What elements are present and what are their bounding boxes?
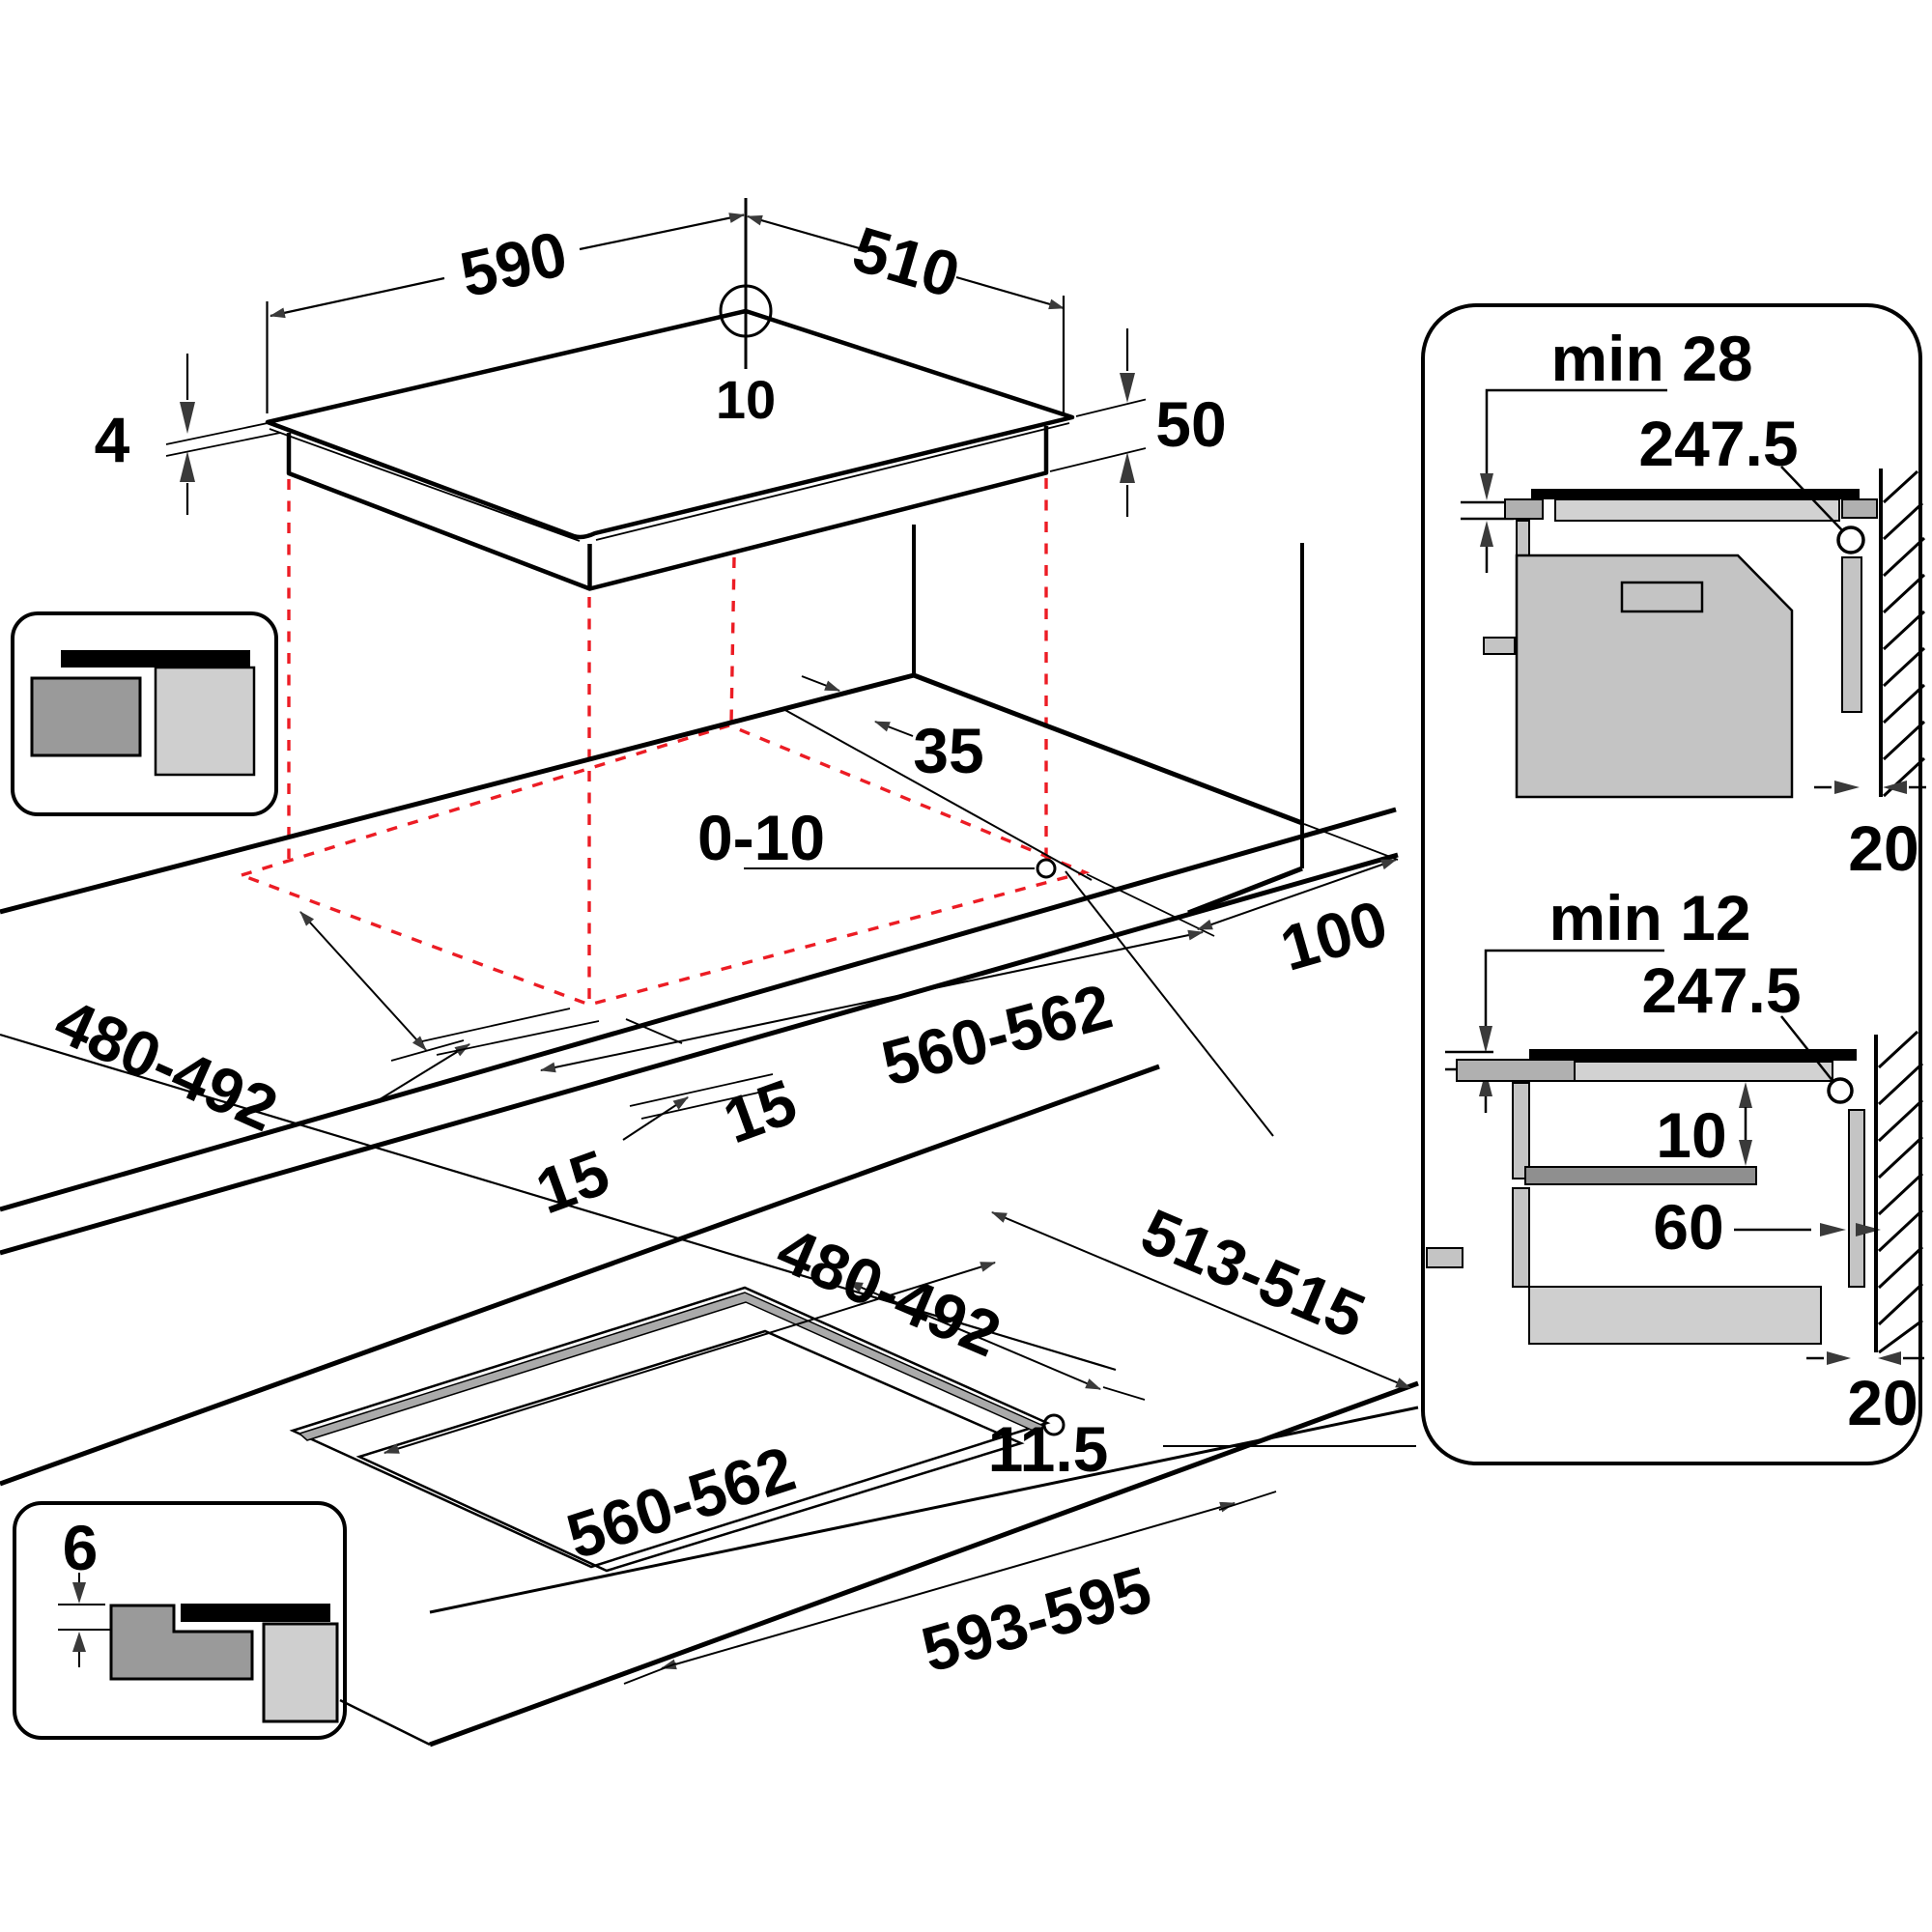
svg-text:560-562: 560-562 — [558, 1432, 803, 1572]
svg-text:100: 100 — [1273, 886, 1395, 983]
svg-text:480-492: 480-492 — [45, 984, 288, 1145]
svg-text:510: 510 — [845, 213, 968, 311]
svg-text:50: 50 — [1155, 388, 1226, 460]
svg-text:4: 4 — [95, 404, 130, 475]
svg-text:min 12: min 12 — [1548, 882, 1750, 953]
svg-text:593-595: 593-595 — [914, 1552, 1158, 1686]
svg-text:11.5: 11.5 — [988, 1413, 1109, 1485]
svg-text:35: 35 — [913, 715, 983, 786]
svg-text:15: 15 — [715, 1065, 806, 1157]
svg-text:10: 10 — [716, 369, 776, 430]
svg-text:247.5: 247.5 — [1641, 954, 1801, 1026]
svg-text:6: 6 — [63, 1512, 99, 1583]
svg-text:513-515: 513-515 — [1131, 1195, 1375, 1352]
svg-text:60: 60 — [1653, 1191, 1723, 1263]
svg-text:590: 590 — [454, 217, 574, 311]
svg-text:20: 20 — [1848, 812, 1918, 884]
svg-text:min 28: min 28 — [1550, 323, 1752, 394]
svg-text:10: 10 — [1656, 1099, 1726, 1171]
svg-text:247.5: 247.5 — [1638, 408, 1798, 479]
svg-text:0-10: 0-10 — [697, 802, 825, 873]
svg-text:20: 20 — [1847, 1367, 1918, 1438]
svg-text:560-562: 560-562 — [874, 970, 1119, 1099]
svg-text:15: 15 — [527, 1136, 618, 1228]
svg-text:480-492: 480-492 — [767, 1213, 1010, 1371]
